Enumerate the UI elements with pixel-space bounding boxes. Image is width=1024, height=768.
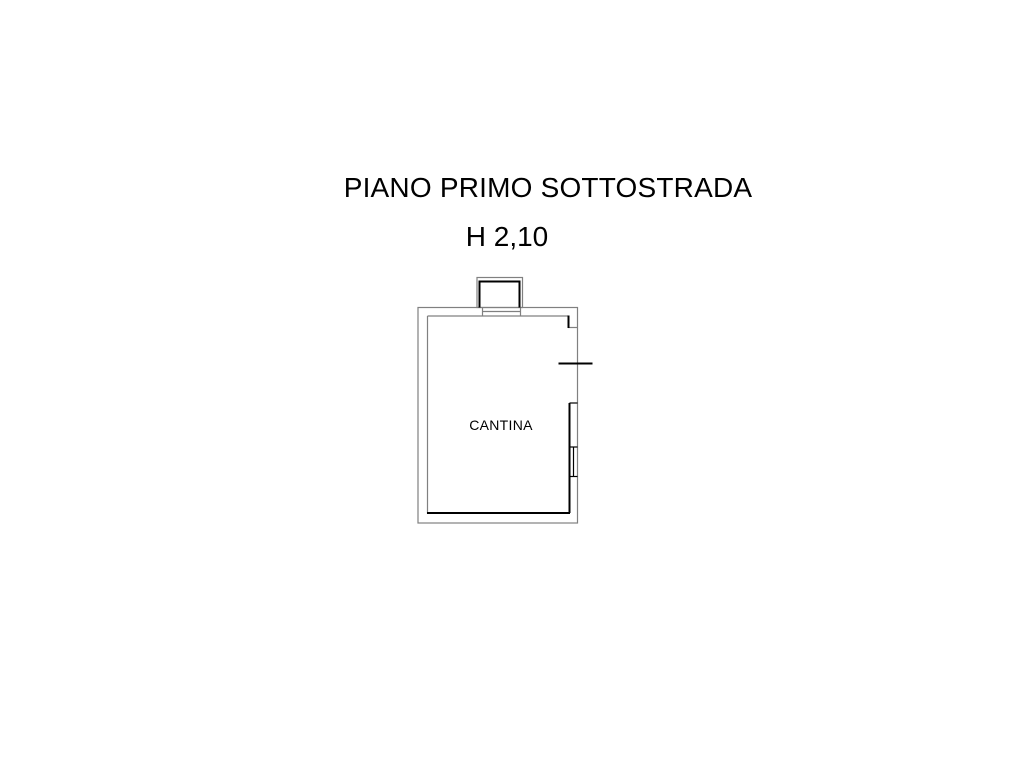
inner-wall-gray — [428, 316, 578, 514]
window-symbol-top — [483, 308, 521, 317]
room-label-cantina: CANTINA — [431, 418, 571, 432]
inner-wall-black — [427, 316, 570, 514]
floor-plan-drawing — [0, 0, 1024, 768]
outer-wall — [418, 308, 578, 524]
window-symbol-right — [570, 403, 578, 477]
light-well-box — [477, 278, 523, 308]
floor-plan-page: PIANO PRIMO SOTTOSTRADA H 2,10 — [0, 0, 1024, 768]
